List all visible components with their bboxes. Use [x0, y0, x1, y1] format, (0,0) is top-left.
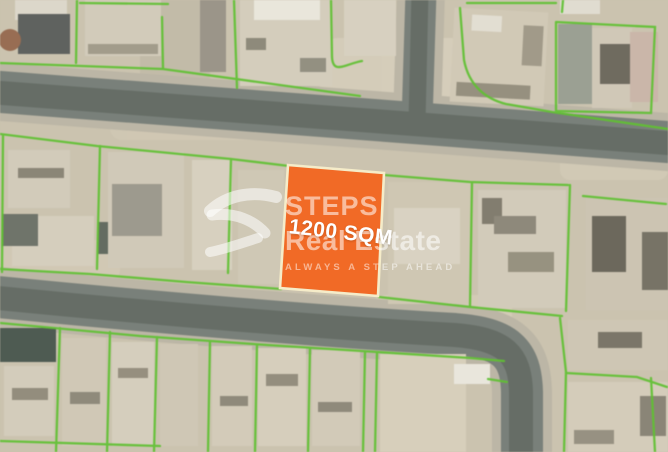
driveway — [200, 0, 226, 72]
satellite-plot-listing-image: STEPS Real Estate ALWAYS A STEP AHEAD 12… — [0, 0, 668, 452]
